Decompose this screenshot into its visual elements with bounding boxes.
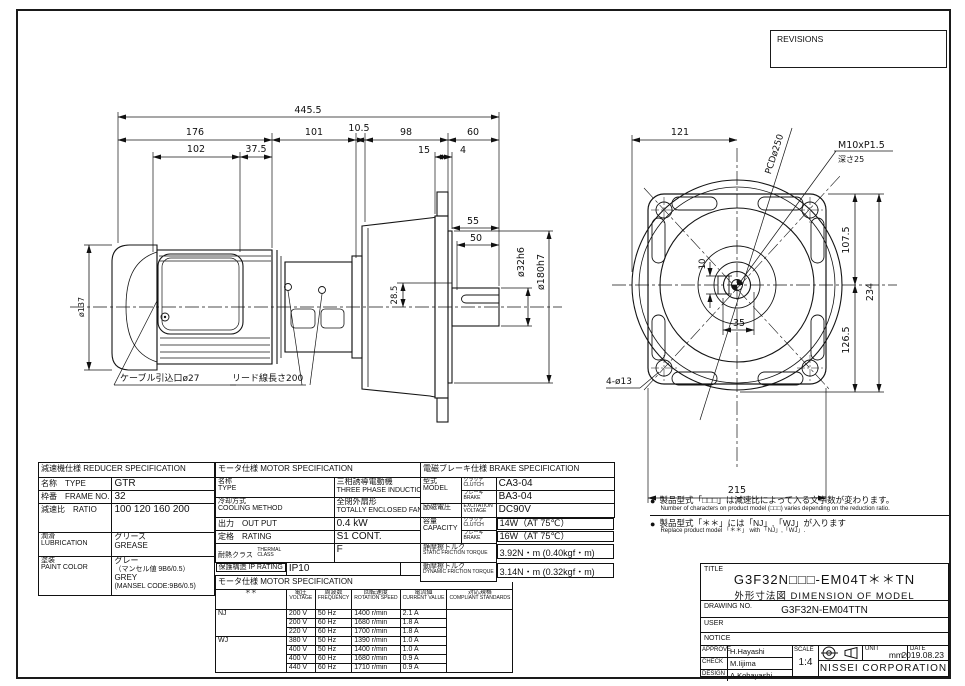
static-torque-label: 静摩擦トルク STATIC FRICTION TORQUE <box>421 544 497 563</box>
paint-value-1: グレー <box>114 557 212 566</box>
col-standards-en: COMPLIANT STANDARDS <box>449 596 510 601</box>
revisions-title: REVISIONS <box>777 34 823 44</box>
label-pcd: PCDø250 <box>764 133 786 176</box>
label-tap-depth: 深さ25 <box>838 155 864 164</box>
cooling-label-jp: 冷却方式 <box>218 498 332 505</box>
col-header-voltage: 電圧 VOLTAGE <box>286 590 315 610</box>
dim-176: 176 <box>186 127 204 138</box>
paint-value-4: (MANSEL CODE:9B6/0.5) <box>114 583 212 591</box>
dim-shaft-diameter: ø32h6 <box>516 247 527 277</box>
dim-10-5: 10.5 <box>348 123 369 134</box>
current-cell: 0.9 A <box>400 655 447 664</box>
notes-block: ● 製品型式「□□□」は減速比によって入る文字数が変わります。 Number o… <box>650 496 949 535</box>
frequency-cell: 50 Hz <box>315 646 351 655</box>
speed-cell: 1710 r/min <box>352 664 400 673</box>
dim-60: 60 <box>467 127 479 138</box>
label-mounting-holes: 4-ø13 <box>606 377 632 387</box>
label-tap-hole: M10xP1.5 <box>838 140 885 151</box>
bullet-icon: ● <box>650 519 655 536</box>
paint-label-jp: 塗装 <box>41 557 109 564</box>
motor-ip-label: 保護構造 IP RATING <box>216 563 286 572</box>
dim-4: 4 <box>460 145 466 156</box>
scale-label: SCALE <box>793 646 818 654</box>
reducer-table-title: 減速機仕様 REDUCER SPECIFICATION <box>39 463 215 478</box>
dim-102: 102 <box>187 144 205 155</box>
dim-28-5: 28.5 <box>390 286 400 305</box>
frequency-cell: 60 Hz <box>315 628 351 637</box>
scale-value: 1:4 <box>793 657 818 668</box>
capacity-clutch-sublabel: クラッチ CLUTCH <box>461 518 496 531</box>
model-label-en: MODEL <box>423 485 459 492</box>
clutch-sublabel-en: CLUTCH <box>464 483 494 488</box>
dim-15: 15 <box>418 145 430 156</box>
design-name: A.Kobayashi <box>728 670 792 681</box>
col-voltage-en: VOLTAGE <box>289 596 313 601</box>
dim-spigot-diameter: ø180h7 <box>536 254 547 290</box>
scale-cell: SCALE 1:4 <box>793 646 819 677</box>
capacity-label-jp: 容量 <box>423 518 459 525</box>
voltage-cell: 200 V <box>286 610 315 619</box>
approve-row: APPROVE H.Hayashi <box>701 646 792 658</box>
brake-table-title: 電磁ブレーキ仕様 BRAKE SPECIFICATION <box>421 463 615 478</box>
dim-234: 234 <box>865 283 876 301</box>
voltage-cell: 380 V <box>286 637 315 646</box>
reducer-spec-table: 減速機仕様 REDUCER SPECIFICATION 名称 TYPE GTR … <box>38 462 215 596</box>
drawing-no-row: DRAWING NO. G3F32N-EM04TTN <box>701 601 948 618</box>
brake-voltage-value: DC90V <box>496 504 614 518</box>
reducer-lubrication-label: 潤滑 LUBRICATION <box>39 533 112 557</box>
col-header-speed: 回転速度 ROTATION SPEED <box>352 590 400 610</box>
reducer-type-label: 名称 TYPE <box>39 478 112 491</box>
unit-label: UNIT <box>865 646 879 652</box>
approval-block: APPROVE H.Hayashi CHECK M.Iijima DESIGN … <box>701 646 948 677</box>
lubrication-value-en: GREASE <box>114 542 212 551</box>
voltage-label-jp: 励磁電圧 <box>423 504 459 511</box>
note-1: ● 製品型式「□□□」は減速比によって入る文字数が変わります。 Number o… <box>650 496 949 516</box>
brake-spec-table: 電磁ブレーキ仕様 BRAKE SPECIFICATION 型式 MODEL クラ… <box>420 462 615 582</box>
capacity-label-en: CAPACITY <box>423 525 459 532</box>
note-1-jp: 製品型式「□□□」は減速比によって入る文字数が変わります。 <box>659 495 894 505</box>
revisions-box: REVISIONS <box>770 30 947 68</box>
model-number: G3F32N□□□-EM04T＊＊TN <box>701 564 948 588</box>
motor-ip-value: IP10 <box>286 563 400 576</box>
frequency-cell: 50 Hz <box>315 637 351 646</box>
motor-type-label: 名称 TYPE <box>216 478 335 498</box>
speed-cell: 1700 r/min <box>352 628 400 637</box>
model-label-jp: 型式 <box>423 478 459 485</box>
col-current-en: CURRENT VALUE <box>403 596 445 601</box>
title-label: TITLE <box>704 566 723 573</box>
thermal-label-jp: 耐熱クラス <box>218 552 253 559</box>
frequency-cell: 60 Hz <box>315 664 351 673</box>
speed-cell: 1680 r/min <box>352 655 400 664</box>
voltage-cell: 400 V <box>286 655 315 664</box>
current-cell: 0.9 A <box>400 664 447 673</box>
note-2-en: Replace product model 「＊＊」 with 「NJ」,「WJ… <box>660 528 846 535</box>
dim-motor-diameter: ø137 <box>77 297 86 317</box>
dim-total-length: 445.5 <box>294 105 321 116</box>
dynamic-torque-label: 動摩擦トルク DYNAMIC FRICTION TORQUE <box>421 563 497 582</box>
current-cell: 1.8 A <box>400 628 447 637</box>
voltage-cell: 200 V <box>286 619 315 628</box>
dynamic-torque-value: 3.14N・m (0.32kgf・m) <box>497 563 615 579</box>
drawing-no-label: DRAWING NO. <box>704 603 752 610</box>
drawing-subtitle: 外形寸法図 DIMENSION OF MODEL <box>701 588 948 602</box>
brake-model-label: 型式 MODEL <box>421 478 462 504</box>
capacity-clutch-value: 14W（AT 75℃） <box>497 518 615 530</box>
model-clutch-sublabel: クラッチ CLUTCH <box>461 478 496 491</box>
col-header-standards: 対応規格 COMPLIANT STANDARDS <box>447 590 513 610</box>
speed-cell: 1400 r/min <box>352 646 400 655</box>
voltage-cell: 440 V <box>286 664 315 673</box>
callout-cable-entry: ケーブル引込口ø27 <box>120 372 199 384</box>
col-header-current: 電流値 CURRENT VALUE <box>400 590 447 610</box>
dim-35: 35 <box>733 318 745 329</box>
model-brake-sublabel: ブレーキ BRAKE <box>461 491 496 504</box>
note-2: ● 製品型式「＊＊」には「NJ」,「WJ」が入ります Replace produ… <box>650 519 949 536</box>
static-torque-value: 3.92N・m (0.40kgf・m) <box>497 544 615 560</box>
motor-thermal-label: 耐熱クラス THERMAL CLASS <box>216 544 335 563</box>
current-cell: 1.0 A <box>400 646 447 655</box>
dim-126-5: 126.5 <box>841 326 852 353</box>
reducer-frame-value: 32 <box>112 491 215 504</box>
voltage-cell: 220 V <box>286 628 315 637</box>
motor-type-label-en: TYPE <box>218 485 332 492</box>
company-name: NISSEI CORPORATION <box>819 661 948 677</box>
third-angle-projection-icon <box>821 646 861 660</box>
motor-cooling-label: 冷却方式 COOLING METHOD <box>216 498 335 518</box>
approve-name: H.Hayashi <box>728 646 792 657</box>
projection-symbol-cell <box>819 646 863 660</box>
col-header-frequency: 周波数 FREQUENCY <box>315 590 351 610</box>
check-row: CHECK M.Iijima <box>701 658 792 670</box>
speed-cell: 1680 r/min <box>352 619 400 628</box>
col-header-model-mark: ＊＊ <box>216 590 287 610</box>
design-row: DESIGN A.Kobayashi <box>701 670 792 681</box>
brake-voltage-sublabel: EXCITATION VOLTAGE <box>461 504 496 518</box>
note-2-jp: 製品型式「＊＊」には「NJ」,「WJ」が入ります <box>659 518 846 528</box>
notice-label: NOTICE <box>704 635 730 642</box>
brake-voltage-label: 励磁電圧 <box>421 504 462 518</box>
title-block: TITLE G3F32N□□□-EM04T＊＊TN 外形寸法図 DIMENSIO… <box>700 563 949 677</box>
frequency-cell: 60 Hz <box>315 619 351 628</box>
check-name: M.Iijima <box>728 658 792 669</box>
brake-model-brake-value: BA3-04 <box>496 491 614 504</box>
voltage-label-en: EXCITATION VOLTAGE <box>464 504 494 514</box>
clutch-sublabel-en: CLUTCH <box>464 523 494 528</box>
notice-row: NOTICE <box>701 633 948 646</box>
col-speed-en: ROTATION SPEED <box>354 596 397 601</box>
current-cell: 1.8 A <box>400 619 447 628</box>
thermal-label-en: THERMAL CLASS <box>257 548 285 558</box>
dynamic-torque-label-en: DYNAMIC FRICTION TORQUE <box>423 570 494 575</box>
drawing-sheet: 445.5 176 101 10.5 98 60 102 37.5 15 4 5… <box>0 0 965 686</box>
approve-label: APPROVE <box>701 646 728 657</box>
motor-output-label: 出力 OUT PUT <box>216 518 335 531</box>
check-label: CHECK <box>701 658 728 669</box>
frequency-cell: 60 Hz <box>315 655 351 664</box>
brake-model-clutch-value: CA3-04 <box>496 478 614 491</box>
dim-107-5: 107.5 <box>841 226 852 253</box>
current-cell: 2.1 A <box>400 610 447 619</box>
reducer-paint-label: 塗装 PAINT COLOR <box>39 557 112 596</box>
paint-value-3: GREY <box>114 574 212 583</box>
signature-table: APPROVE H.Hayashi CHECK M.Iijima DESIGN … <box>701 646 793 677</box>
frequency-cell: 50 Hz <box>315 610 351 619</box>
cooling-label-en: COOLING METHOD <box>218 505 332 512</box>
lubrication-label-en: LUBRICATION <box>41 540 109 547</box>
note-1-en: Number of characters on product model (□… <box>660 506 894 513</box>
motor-row-group-nj: NJ <box>216 610 287 637</box>
speed-cell: 1400 r/min <box>352 610 400 619</box>
design-label: DESIGN <box>701 670 728 681</box>
speed-cell: 1390 r/min <box>352 637 400 646</box>
standards-cell <box>447 610 513 673</box>
dim-keyway-10: 10 <box>698 259 708 270</box>
dim-121: 121 <box>671 127 689 138</box>
col-frequency-en: FREQUENCY <box>318 596 349 601</box>
brake-capacity-label: 容量 CAPACITY <box>421 518 462 544</box>
date-value: 2019.08.23 <box>901 650 944 660</box>
reducer-paint-value: グレー （マンセル値 9B6/0.5） GREY (MANSEL CODE:9B… <box>112 557 215 596</box>
reducer-type-value: GTR <box>112 478 215 491</box>
current-cell: 1.0 A <box>400 637 447 646</box>
dim-50: 50 <box>470 233 482 244</box>
dim-98: 98 <box>400 127 412 138</box>
reducer-frame-label: 枠番 FRAME NO. <box>39 491 112 504</box>
lubrication-label-jp: 潤滑 <box>41 533 109 540</box>
capacity-brake-sublabel: ブレーキ BRAKE <box>461 531 496 544</box>
paint-label-en: PAINT COLOR <box>41 564 109 571</box>
voltage-cell: 400 V <box>286 646 315 655</box>
date-cell: DATE 2019.08.23 <box>908 646 948 660</box>
title-row: TITLE G3F32N□□□-EM04T＊＊TN 外形寸法図 DIMENSIO… <box>701 564 948 601</box>
static-torque-label-en: STATIC FRICTION TORQUE <box>423 551 494 556</box>
dim-37-5: 37.5 <box>245 144 266 155</box>
user-row: USER <box>701 618 948 633</box>
brake-sublabel-en: BRAKE <box>464 536 494 541</box>
reducer-lubrication-value: グリース GREASE <box>112 533 215 557</box>
reducer-ratio-value: 100 120 160 200 <box>112 504 215 533</box>
bullet-icon: ● <box>650 496 655 513</box>
user-label: USER <box>704 620 723 627</box>
reducer-ratio-label: 減速比 RATIO <box>39 504 112 533</box>
dim-55: 55 <box>467 216 479 227</box>
dim-101: 101 <box>305 127 323 138</box>
motor-rating-label: 定格 RATING <box>216 531 335 544</box>
capacity-brake-value: 16W（AT 75℃） <box>497 531 615 543</box>
callout-lead-wire: リード線長さ200 <box>232 372 303 384</box>
brake-sublabel-en: BRAKE <box>464 496 494 501</box>
motor-row-group-wj: WJ <box>216 637 287 673</box>
motor-type-label-jp: 名称 <box>218 478 332 485</box>
